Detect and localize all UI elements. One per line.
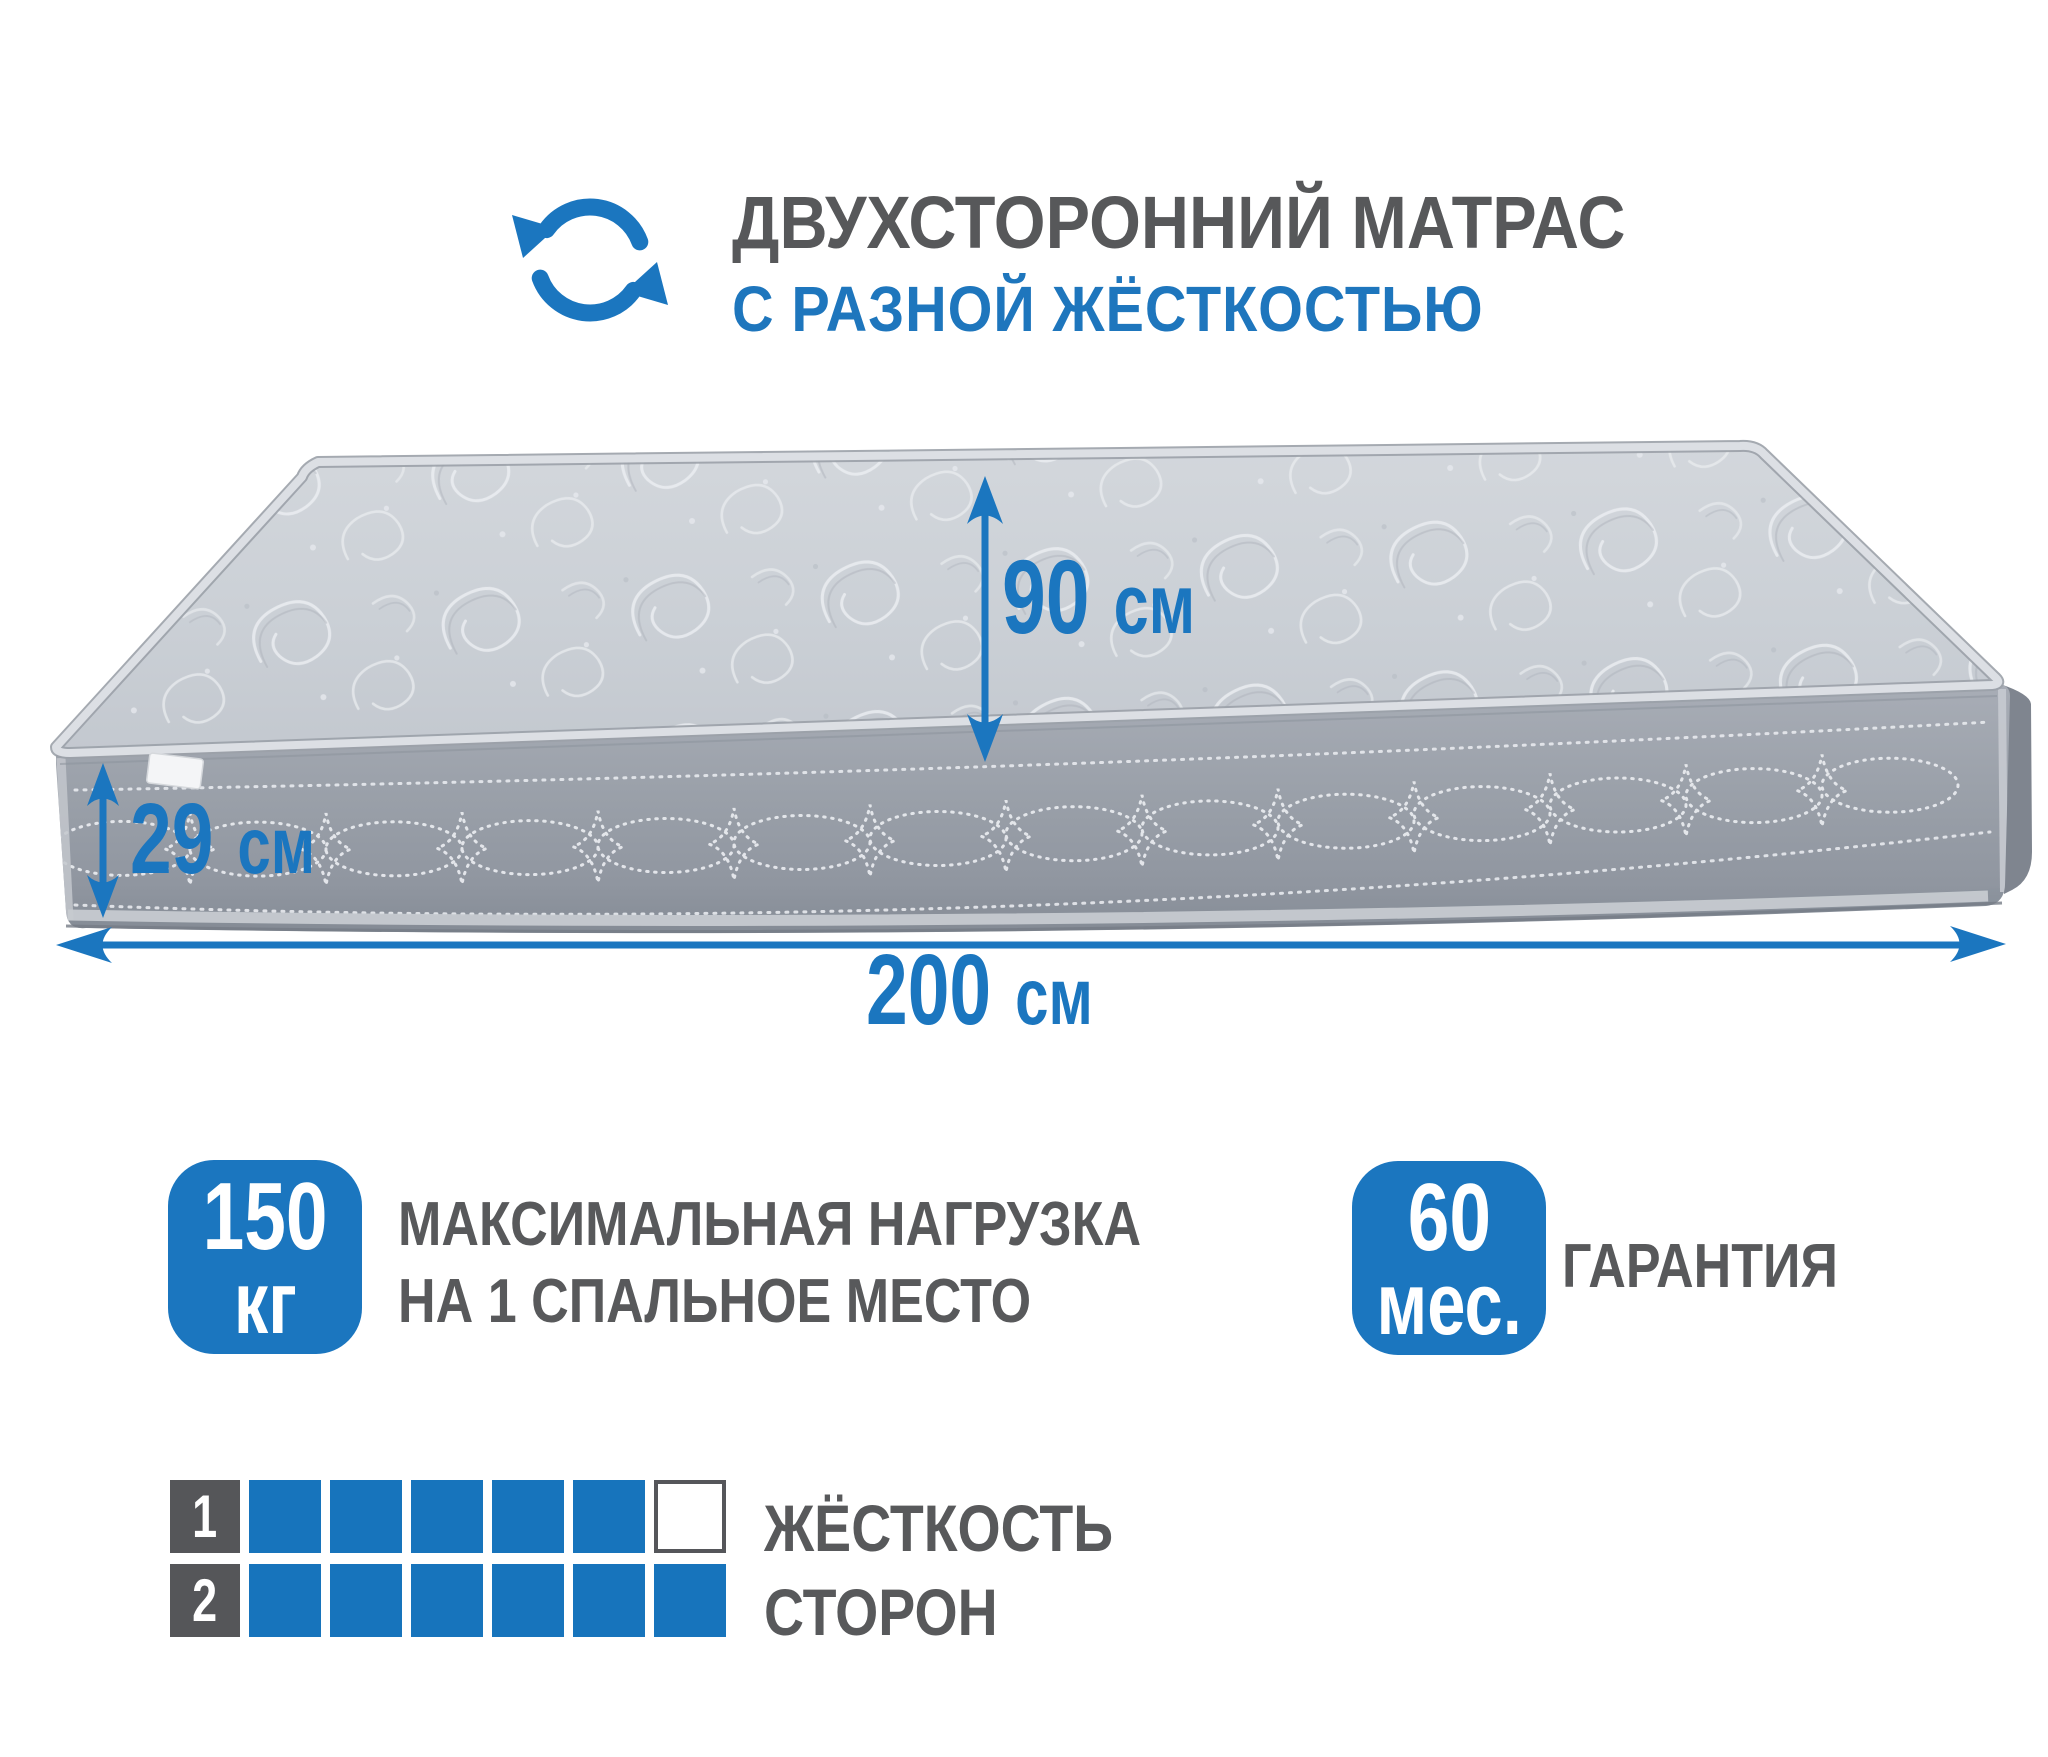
length-value: 200	[866, 940, 991, 1040]
max-load-unit: кг	[234, 1263, 297, 1342]
hardness-cell-filled	[492, 1564, 564, 1637]
max-load-label-line1: МАКСИМАЛЬНАЯ НАГРУЗКА	[398, 1186, 1141, 1263]
max-load-label-line2: НА 1 СПАЛЬНОЕ МЕСТО	[398, 1263, 1141, 1340]
length-dimension-label: 200 см	[866, 940, 1093, 1040]
warranty-badge: 60 мес.	[1352, 1161, 1546, 1355]
side-number-label: 1	[170, 1480, 240, 1553]
hardness-cell-filled	[654, 1564, 726, 1637]
hardness-cell-filled	[492, 1480, 564, 1553]
max-load-label: МАКСИМАЛЬНАЯ НАГРУЗКА НА 1 СПАЛЬНОЕ МЕСТ…	[398, 1186, 1141, 1340]
hardness-cell-filled	[330, 1564, 402, 1637]
hardness-cell-filled	[573, 1480, 645, 1553]
rotate-arrows-icon	[503, 183, 677, 323]
warranty-unit: мес.	[1376, 1264, 1521, 1343]
height-dimension-label: 29 см	[130, 789, 315, 889]
hardness-cell-filled	[249, 1480, 321, 1553]
side-number-label: 2	[170, 1564, 240, 1637]
hardness-row-side-2: 2	[170, 1564, 726, 1637]
width-unit: см	[1114, 562, 1196, 646]
length-unit: см	[1015, 957, 1093, 1037]
page-subtitle: С РАЗНОЙ ЖЁСТКОСТЬЮ	[732, 276, 1625, 343]
warranty-value: 60	[1407, 1172, 1490, 1264]
hardness-cell-filled	[411, 1564, 483, 1637]
hardness-cell-filled	[330, 1480, 402, 1553]
hardness-cell-empty	[654, 1480, 726, 1553]
mattress-infographic: ДВУХСТОРОННИЙ МАТРАС С РАЗНОЙ ЖЁСТКОСТЬЮ…	[0, 0, 2048, 1757]
warranty-label: ГАРАНТИЯ	[1562, 1228, 1838, 1305]
hardness-label: ЖЁСТКОСТЬ СТОРОН	[764, 1486, 1113, 1654]
hardness-scale: 12	[170, 1480, 726, 1637]
max-load-value: 150	[203, 1171, 328, 1263]
width-value: 90	[1002, 545, 1090, 650]
page-title: ДВУХСТОРОННИЙ МАТРАС	[732, 184, 1625, 262]
hardness-row-side-1: 1	[170, 1480, 726, 1553]
max-load-badge: 150 кг	[168, 1160, 362, 1354]
header: ДВУХСТОРОННИЙ МАТРАС С РАЗНОЙ ЖЁСТКОСТЬЮ	[732, 184, 1725, 343]
hardness-label-line2: СТОРОН	[764, 1570, 1113, 1654]
width-dimension-label: 90 см	[1002, 545, 1195, 650]
hardness-cell-filled	[411, 1480, 483, 1553]
hardness-label-line1: ЖЁСТКОСТЬ	[764, 1486, 1113, 1570]
height-unit: см	[237, 806, 315, 886]
height-value: 29	[130, 789, 213, 889]
hardness-cell-filled	[249, 1564, 321, 1637]
hardness-cell-filled	[573, 1564, 645, 1637]
